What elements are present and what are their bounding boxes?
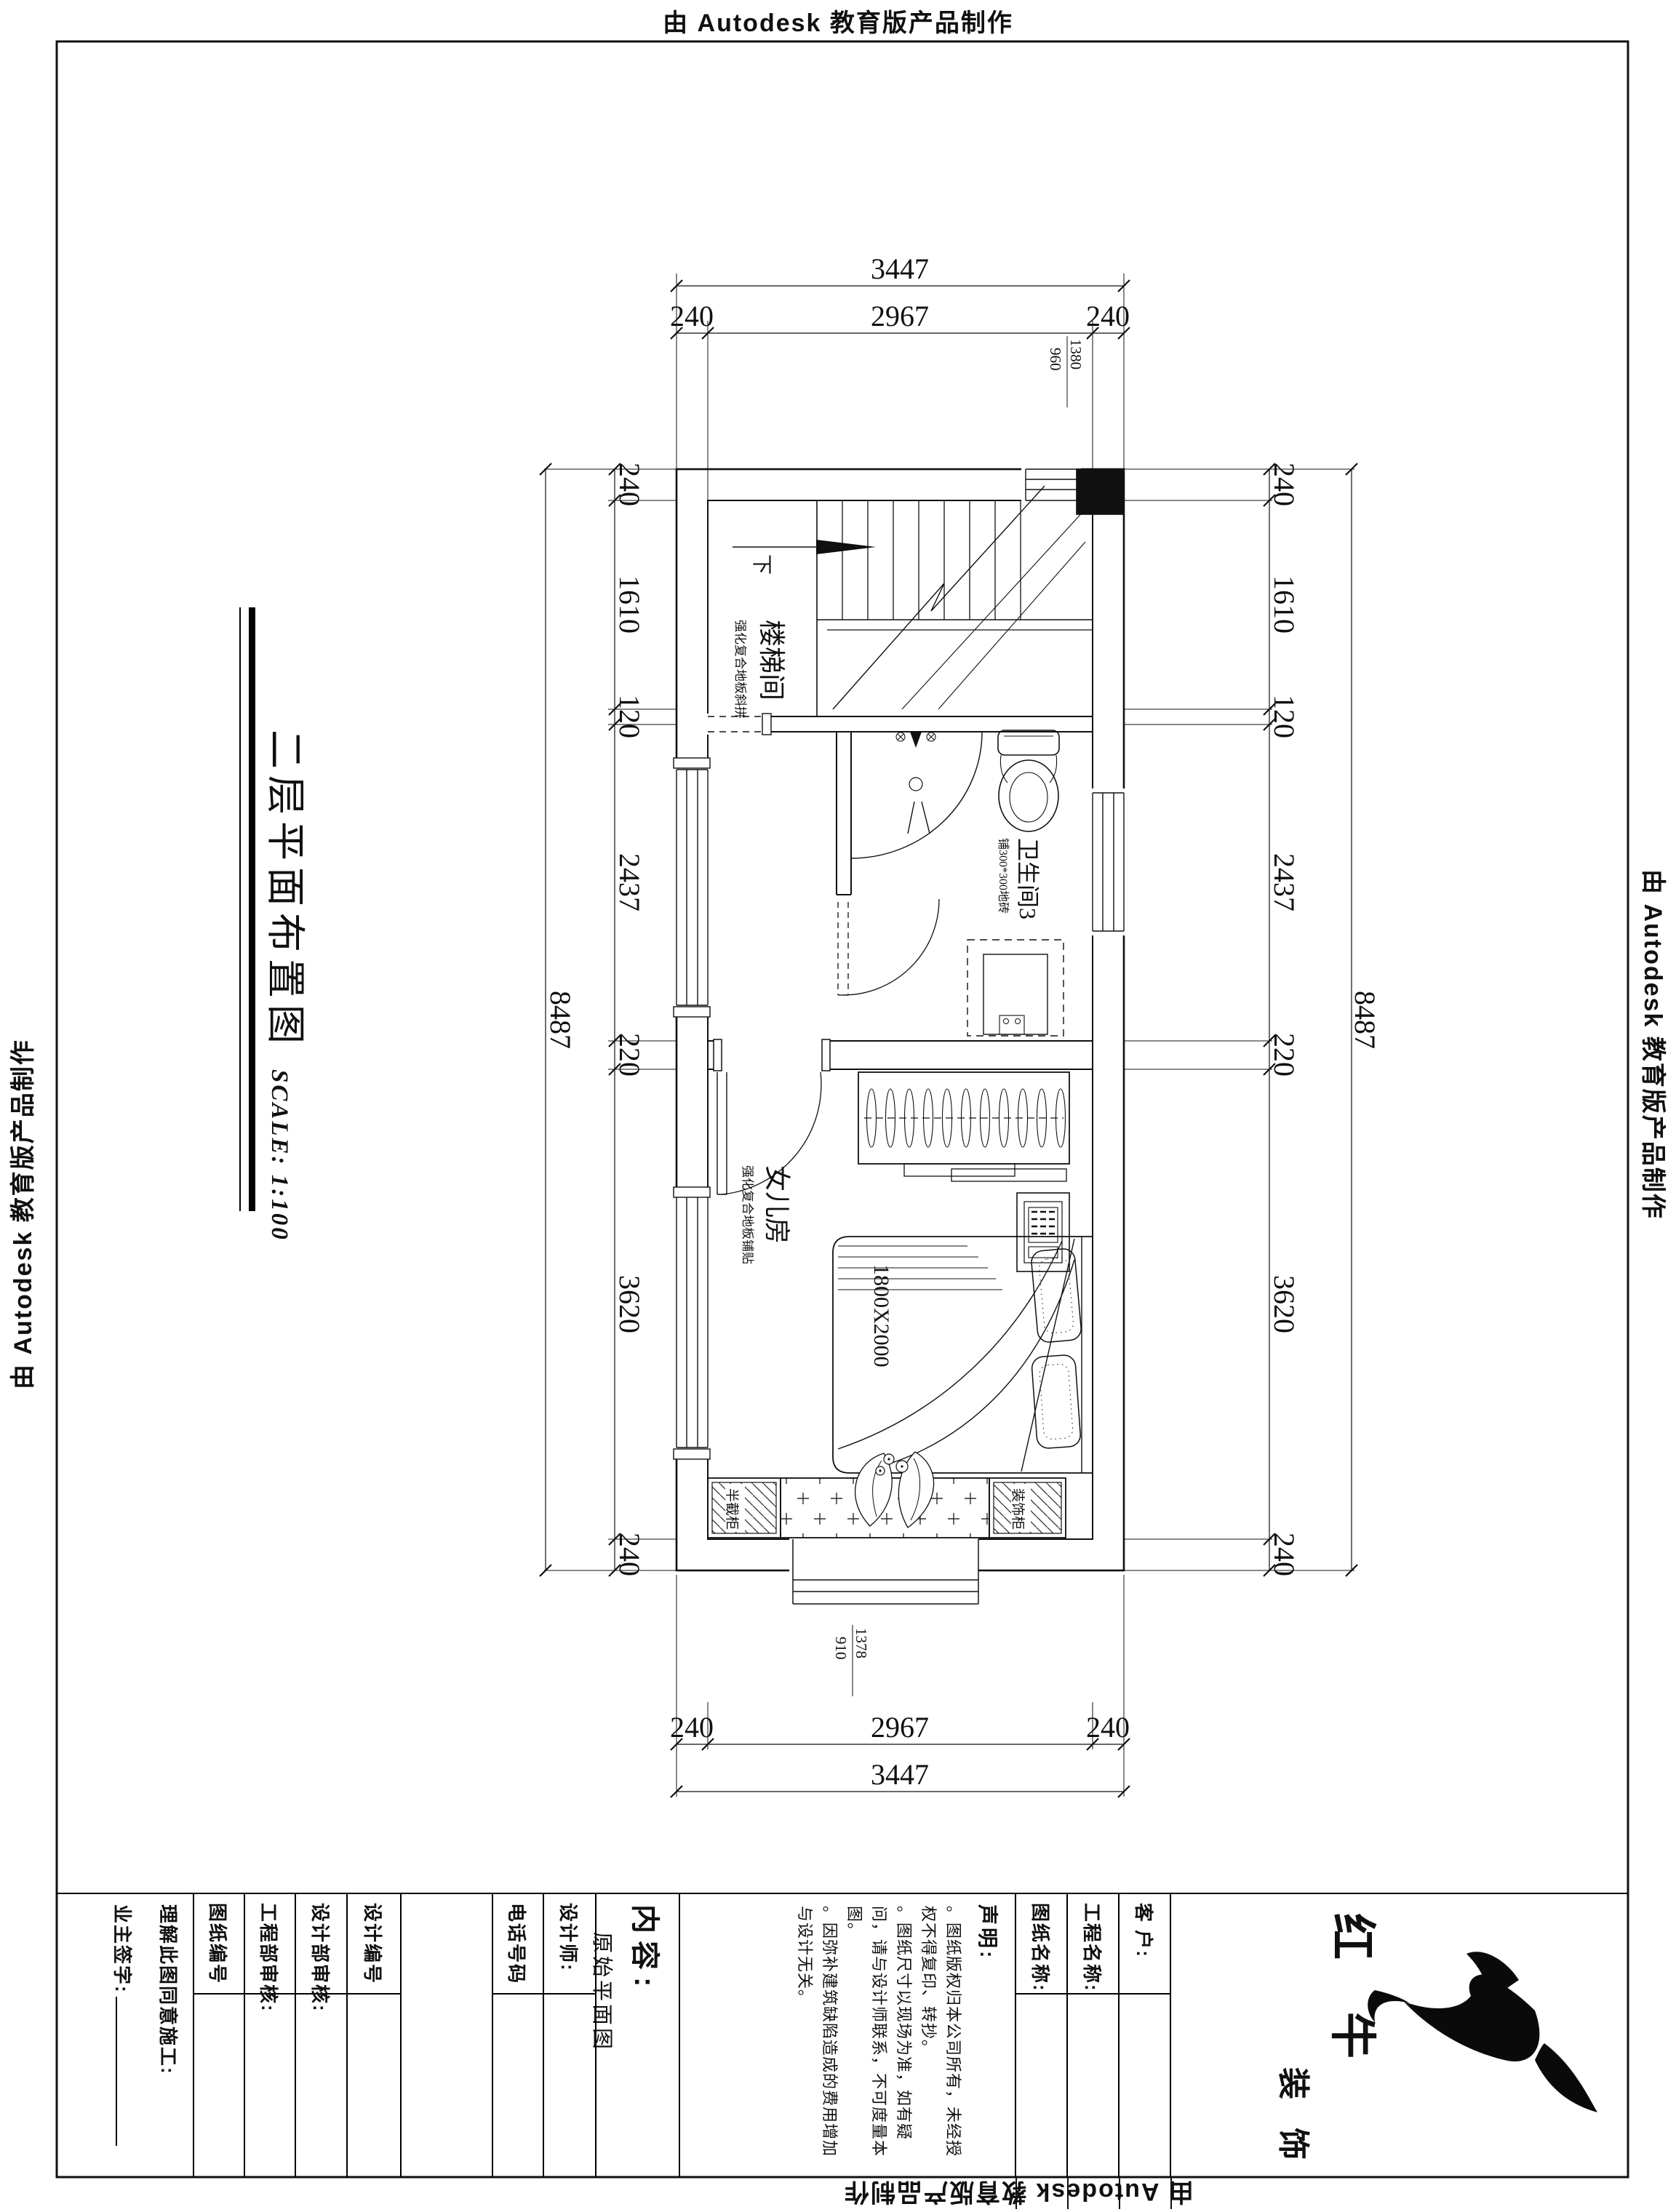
cabinet-left-label: 半截柜 — [724, 1488, 740, 1530]
dim-label: 120 — [613, 695, 646, 738]
dim-label: 2437 — [1268, 853, 1301, 911]
sheet-name-row: 图纸名称: — [1016, 1894, 1068, 2177]
dim-label: 960 — [1047, 348, 1064, 371]
floor-plan: 楼梯间 强化复合地板斜拼 下 卫生间3 铺300*300地砖 女儿房 强化复合地… — [540, 252, 1381, 1797]
stair-down-label: 下 — [750, 554, 773, 575]
autodesk-stamp-right: 由 Autodesk 教育版产品制作 — [1641, 869, 1673, 1393]
dim-bottom: 240 2967 240 3447 — [670, 1575, 1130, 1797]
bathroom-finish-label: 铺300*300地砖 — [997, 838, 1010, 914]
stair-direction-arrow — [816, 540, 876, 554]
client-row: 客 户: — [1120, 1894, 1171, 2177]
vanity — [967, 940, 1064, 1036]
owner-sign-label: 业主签字: — [111, 1904, 133, 1994]
spare-row — [402, 1894, 493, 2177]
dim-label: 3447 — [871, 1758, 929, 1791]
project-name-label: 工程名称: — [1080, 1894, 1106, 1992]
window-left-upper — [672, 758, 713, 1017]
agree-label: 理解此图同意施工: — [156, 1904, 183, 2177]
wall-bath-bedroom — [708, 1038, 1093, 1072]
window-right — [1088, 788, 1129, 935]
dim-right: 240 1610 120 2437 220 3620 240 8487 — [1124, 463, 1381, 1576]
dim-label: 8487 — [1349, 991, 1381, 1049]
sheet-no-label: 图纸编号 — [206, 1894, 233, 1984]
window-left-lower — [672, 1187, 713, 1459]
bathroom-label: 卫生间3 — [1015, 838, 1041, 919]
bedroom-finish-label: 强化复合地板铺贴 — [741, 1165, 754, 1264]
eng-audit-label: 工程部审核: — [257, 1894, 284, 2013]
toilet — [998, 730, 1059, 831]
dim-label: 910 — [832, 1637, 850, 1660]
brand-name: 红 牛 — [1322, 1913, 1389, 2079]
pillow — [1031, 1354, 1082, 1449]
signature-line — [116, 1997, 133, 2146]
dim-top: 3447 240 2967 240 — [670, 252, 1130, 500]
wardrobe — [858, 1072, 1069, 1181]
sheet-name-label: 图纸名称: — [1028, 1894, 1055, 1992]
dim-label: 2967 — [871, 300, 929, 332]
design-audit-row: 设计部审核: — [296, 1894, 348, 2177]
title-underline-thick — [249, 607, 255, 1211]
dim-label: 220 — [613, 1033, 646, 1077]
dim-label: 240 — [613, 463, 646, 506]
dim-label: 3620 — [1268, 1275, 1301, 1333]
eng-audit-row: 工程部审核: — [245, 1894, 296, 2177]
dim-label: 240 — [1086, 300, 1130, 332]
dim-label: 1610 — [1268, 575, 1301, 634]
bathroom-door — [838, 899, 939, 995]
client-label: 客 户: — [1131, 1894, 1158, 1958]
bed-size-label: 1800X2000 — [869, 1264, 893, 1367]
design-no-label: 设计编号 — [361, 1894, 388, 1984]
page-title: 二层平面布置图 — [263, 730, 307, 1050]
sheet-no-row: 图纸编号 — [194, 1894, 245, 2177]
brand-suffix: 装 饰 — [1273, 2067, 1320, 2170]
dim-left: 240 1610 120 2437 220 3620 240 8487 — [540, 463, 677, 1576]
autodesk-stamp-bottom: 由 Autodesk 教育版产品制作 — [313, 2176, 1676, 2212]
dim-label: 2967 — [871, 1711, 929, 1744]
autodesk-stamp-top: 由 Autodesk 教育版产品制作 — [0, 3, 1676, 39]
dim-label: 220 — [1268, 1033, 1301, 1077]
stairwell-label: 楼梯间 — [756, 620, 786, 700]
title-underline-thin — [239, 607, 241, 1211]
bay-window — [789, 1535, 978, 1604]
declaration-label: 声明: — [974, 1894, 1015, 2177]
wall-stair-bath — [706, 714, 1093, 735]
dim-label: 120 — [1268, 695, 1301, 738]
dim-label: 8487 — [544, 991, 577, 1049]
bedroom-label: 女儿房 — [762, 1165, 791, 1244]
pillow — [1031, 1248, 1082, 1343]
project-name-row: 工程名称: — [1068, 1894, 1120, 2177]
dim-window-top: 1380 960 — [1047, 336, 1085, 407]
dim-label: 240 — [1268, 1533, 1301, 1576]
window-top — [1021, 465, 1081, 505]
logo-cell: 红 牛 装 饰 — [1171, 1894, 1628, 2177]
declaration-cell: 声明: 。图纸版权归本公司所有，未经授权不得复印、转抄。 。图纸尺寸以现场为准，… — [680, 1894, 1016, 2177]
bedroom-furniture — [717, 1072, 1093, 1473]
cabinet-right-label: 装饰柜 — [1010, 1488, 1026, 1530]
dim-label: 3447 — [871, 252, 929, 285]
column — [1077, 469, 1124, 514]
phone-row: 电话号码 — [493, 1894, 544, 2177]
declaration-item: 。图纸版权归本公司所有，未经授权不得复印、转抄。 — [916, 1906, 965, 2170]
dim-label: 1378 — [853, 1628, 870, 1658]
dim-window-bottom: 1378 910 — [832, 1625, 870, 1696]
design-audit-label: 设计部审核: — [308, 1894, 335, 2013]
designer-row: 设计师: — [544, 1894, 596, 2177]
title-block: 红 牛 装 饰 客 户: 工程名称: 图纸名称: 声明: 。图纸版权归本公司所有… — [57, 1893, 1628, 2177]
content-cell: 内容: 原始平面图 — [596, 1894, 680, 2177]
stairwell-finish-label: 强化复合地板斜拼 — [733, 620, 747, 719]
nightstand-intercom — [1017, 1193, 1069, 1271]
shower-enclosure — [851, 732, 982, 858]
dim-label: 240 — [670, 300, 714, 332]
scale-label: SCALE: 1:100 — [266, 1069, 292, 1242]
declaration-item: 。图纸尺寸以现场为准，如有疑问，请与设计师联系，不可度量本图。 — [842, 1906, 916, 2170]
dim-label: 240 — [670, 1711, 714, 1744]
dim-label: 1380 — [1067, 339, 1085, 370]
dim-label: 1610 — [613, 575, 646, 634]
designer-label: 设计师: — [556, 1894, 583, 1972]
drawing-title-strip: 二层平面布置图SCALE: 1:100 — [238, 607, 318, 1211]
cad-sheet: { "stamp": { "text": "由 Autodesk 教育版产品制作… — [0, 0, 1676, 2209]
dim-label: 2437 — [613, 853, 646, 911]
stairs — [733, 486, 1093, 716]
bull-logo-icon — [1171, 1894, 1628, 2179]
content-label: 内容: — [626, 1894, 679, 2177]
signature-cell: 理解此图同意施工: 业主签字: — [57, 1894, 194, 2177]
dim-label: 3620 — [613, 1275, 646, 1333]
autodesk-stamp-left: 由 Autodesk 教育版产品制作 — [3, 866, 35, 1389]
dim-label: 240 — [613, 1533, 646, 1576]
dim-label: 240 — [1268, 463, 1301, 506]
dim-label: 240 — [1086, 1711, 1130, 1744]
declaration-item: 。因弥补建筑缺陷造成的费用增加与设计无关。 — [792, 1906, 842, 2170]
design-no-row: 设计编号 — [348, 1894, 402, 2177]
phone-label: 电话号码 — [505, 1894, 532, 1984]
